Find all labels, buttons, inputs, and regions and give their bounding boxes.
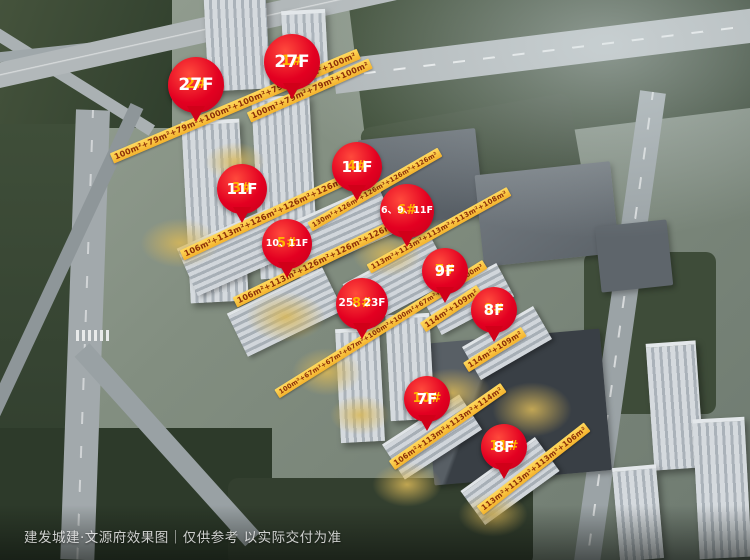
pin-floor-count: 6、9、11F [381,206,433,216]
building-pin-7[interactable]: 7# 9F [422,248,468,294]
landscape-accent [330,395,390,435]
building-pin-8[interactable]: 8# 25、23F [336,278,388,330]
building-pin-1[interactable]: 1# 27F [264,34,320,90]
pin-floor-count: 10、11F [266,239,308,249]
pin-floor-count: 11F [226,181,257,198]
landscape-accent [372,462,442,507]
building-pin-2[interactable]: 2# 27F [168,57,224,113]
building-pin-11[interactable]: 11# 8F [481,424,527,470]
building-pin-6[interactable]: 6# 6、9、11F [380,184,434,238]
pin-floor-count: 7F [417,391,438,408]
building-pin-9[interactable]: 9# 8F [471,287,517,333]
pin-floor-count: 11F [341,159,372,176]
landscape-accent [246,292,326,342]
pin-floor-count: 27F [274,53,309,72]
pin-floor-count: 9F [435,263,456,280]
industrial-building-3 [595,219,674,292]
building-pin-5[interactable]: 5# 10、11F [262,219,312,269]
crosswalk [76,330,110,341]
building-pin-4[interactable]: 4# 11F [332,142,382,192]
pin-floor-count: 27F [178,76,213,95]
aerial-effect-rendering: 100m²+79m²+79m²+100m²+100m²+79m²+79m²+10… [0,0,750,560]
pin-floor-count: 8F [484,302,505,319]
pin-floor-count: 25、23F [339,298,386,310]
building-pin-10[interactable]: 10# 7F [404,376,450,422]
building-pin-3[interactable]: 3# 11F [217,164,267,214]
pin-floor-count: 8F [494,439,515,456]
watermark-disclaimer: 建发城建·文源府效果图｜仅供参考 以实际交付为准 [24,526,342,546]
